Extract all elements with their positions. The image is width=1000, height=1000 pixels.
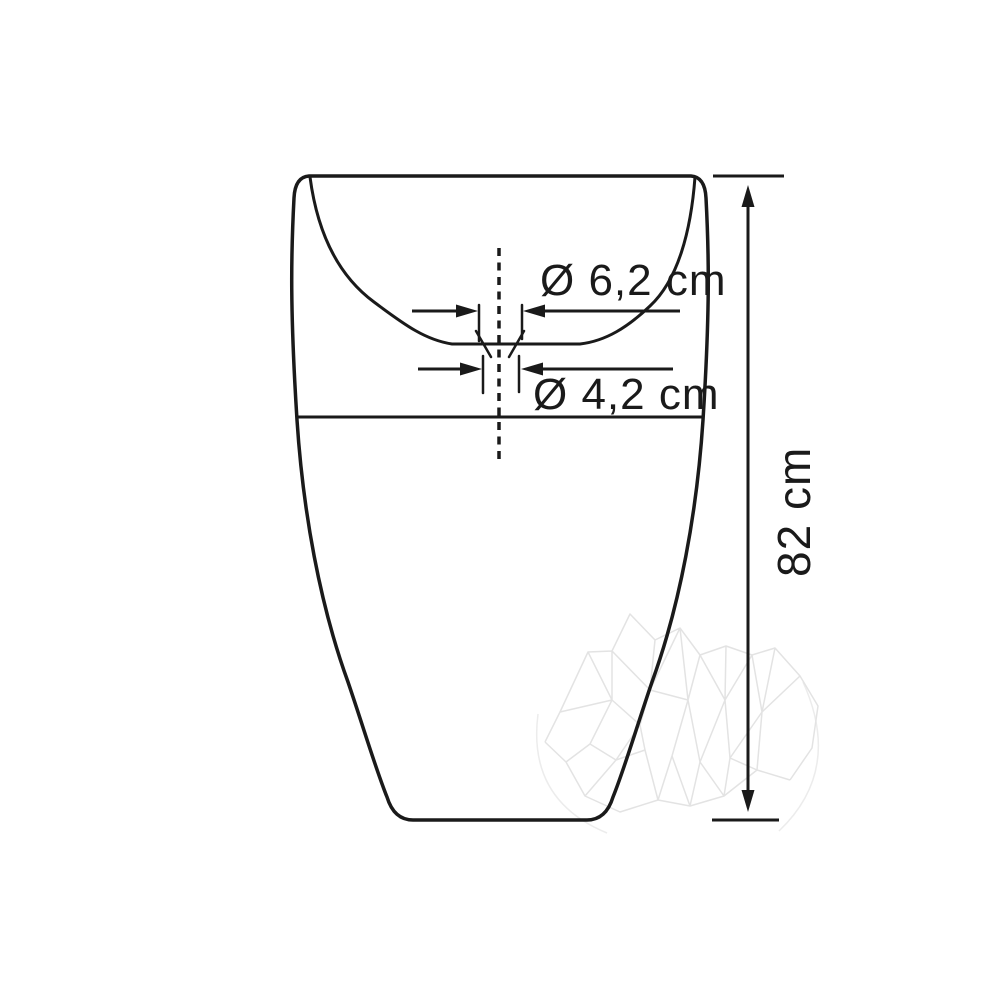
label-height: 82 cm — [768, 447, 820, 577]
watermark-arc-right — [779, 682, 818, 831]
label-drain-diameter: Ø 4,2 cm — [533, 370, 720, 419]
drawing-canvas: Ø 6,2 cm Ø 4,2 cm 82 cm — [0, 0, 1000, 1000]
technical-drawing: Ø 6,2 cm Ø 4,2 cm 82 cm — [0, 0, 1000, 1000]
watermark-mesh — [545, 614, 818, 812]
watermark-lowpoly-logo — [537, 614, 819, 833]
dim42-arrowhead-right-icon — [460, 363, 482, 376]
height-arrowhead-down-icon — [742, 790, 755, 812]
label-top-diameter: Ø 6,2 cm — [540, 256, 727, 305]
dimension-top-hole-diameter: Ø 6,2 cm — [412, 256, 727, 357]
height-arrowhead-up-icon — [742, 185, 755, 207]
dimension-drain-hole-diameter: Ø 4,2 cm — [418, 356, 720, 419]
dim62-arrowhead-left-icon — [523, 305, 545, 318]
dimension-overall-height: 82 cm — [712, 176, 820, 820]
dim62-arrowhead-right-icon — [456, 305, 478, 318]
